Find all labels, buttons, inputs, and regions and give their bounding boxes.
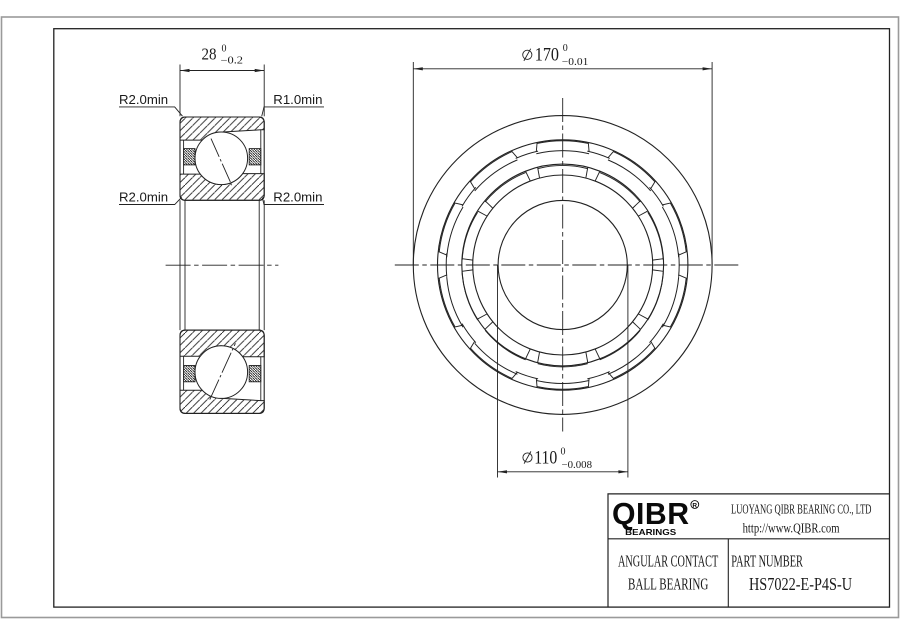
svg-text:110: 110 bbox=[534, 448, 557, 469]
svg-text:0: 0 bbox=[561, 447, 566, 458]
svg-text:http://www.QIBR.com: http://www.QIBR.com bbox=[743, 521, 840, 536]
svg-text:R1.0min: R1.0min bbox=[273, 92, 322, 107]
svg-text:HS7022-E-P4S-U: HS7022-E-P4S-U bbox=[749, 574, 852, 594]
svg-text:0: 0 bbox=[563, 43, 568, 54]
svg-text:ANGULAR CONTACT: ANGULAR CONTACT bbox=[618, 552, 719, 571]
svg-text:QIBR: QIBR bbox=[612, 496, 690, 531]
svg-text:R: R bbox=[692, 502, 697, 509]
svg-text:R2.0min: R2.0min bbox=[119, 92, 168, 107]
svg-text:R2.0min: R2.0min bbox=[119, 190, 168, 205]
svg-text:−0.01: −0.01 bbox=[562, 57, 589, 68]
svg-text:PART NUMBER: PART NUMBER bbox=[731, 552, 803, 571]
svg-text:0: 0 bbox=[222, 44, 227, 55]
svg-text:R2.0min: R2.0min bbox=[273, 190, 322, 205]
svg-text:LUOYANG QIBR BEARING CO., LTD: LUOYANG QIBR BEARING CO., LTD bbox=[731, 501, 872, 516]
svg-text:28: 28 bbox=[202, 44, 217, 63]
svg-text:−0.2: −0.2 bbox=[221, 56, 244, 67]
svg-text:−0.008: −0.008 bbox=[562, 460, 593, 471]
svg-text:BALL BEARING: BALL BEARING bbox=[628, 575, 708, 594]
svg-text:170: 170 bbox=[535, 46, 559, 66]
svg-text:BEARINGS: BEARINGS bbox=[625, 527, 677, 537]
